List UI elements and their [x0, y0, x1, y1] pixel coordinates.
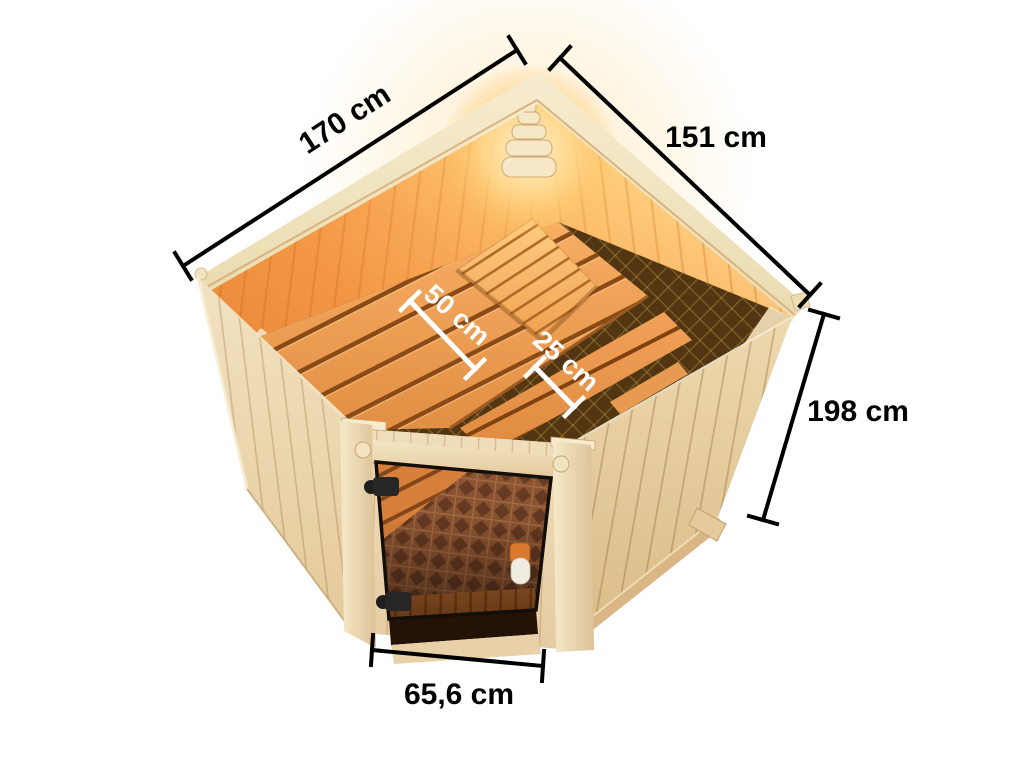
frame-knob-left: [355, 442, 371, 458]
sauna-illustration: 170 cm 151 cm 198 cm 65,6 cm 50 cm 25 cm: [0, 0, 1024, 768]
dim-656-tick-start: [371, 635, 373, 665]
door-handle: [510, 543, 530, 584]
lamp-slat: [518, 112, 540, 124]
lamp-slat: [506, 140, 552, 156]
dim-656-label: 65,6 cm: [404, 678, 514, 711]
door-post-right: [553, 441, 594, 652]
hinge-top: [373, 477, 399, 496]
dim-151-label: 151 cm: [665, 121, 767, 154]
lamp-slat: [502, 157, 556, 177]
dim-656-tick-end: [542, 651, 544, 681]
glass-door: [364, 462, 551, 619]
dim-198-label: 198 cm: [807, 395, 909, 428]
hinge-bottom: [385, 592, 411, 611]
frame-knob-right: [553, 456, 569, 472]
sauna-dimension-diagram: 170 cm 151 cm 198 cm 65,6 cm 50 cm 25 cm: [0, 0, 1024, 768]
lamp-slat: [512, 125, 546, 139]
door-handle-grip: [511, 558, 530, 584]
